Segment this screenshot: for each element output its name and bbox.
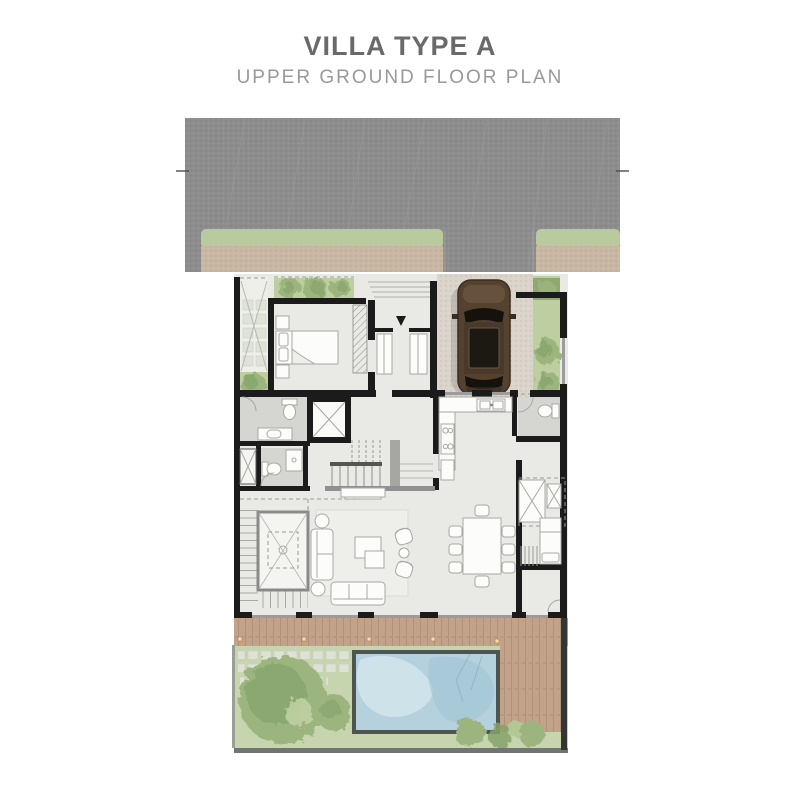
side-table-round bbox=[399, 548, 409, 558]
page: VILLA TYPE A UPPER GROUND FLOOR PLAN bbox=[0, 0, 800, 800]
bedroom-planter bbox=[274, 277, 354, 301]
sofa-3-seat bbox=[331, 582, 385, 605]
car bbox=[451, 280, 516, 394]
backyard-big-tree bbox=[239, 656, 327, 744]
pillow bbox=[279, 333, 288, 346]
dining-table bbox=[463, 518, 501, 574]
wardrobe bbox=[353, 305, 367, 373]
toilet bbox=[282, 399, 297, 420]
bathroom-2 bbox=[261, 448, 303, 486]
car-hood bbox=[463, 285, 505, 303]
console-table bbox=[341, 488, 385, 497]
yard-bottom-edge bbox=[234, 748, 568, 753]
car-sunroof bbox=[469, 328, 499, 368]
sidewalk-right bbox=[536, 229, 620, 272]
plan-subtitle: UPPER GROUND FLOOR PLAN bbox=[0, 67, 800, 89]
yard-right-edge bbox=[561, 618, 567, 750]
plan-title: VILLA TYPE A bbox=[0, 31, 800, 62]
toilet bbox=[262, 462, 281, 476]
double-height-void bbox=[258, 512, 308, 590]
lower-stair-flight bbox=[240, 510, 258, 606]
yard-left-edge bbox=[232, 645, 235, 748]
sidewalk-left bbox=[201, 229, 443, 272]
side-table-round bbox=[311, 582, 325, 596]
sink bbox=[267, 430, 281, 438]
car-mirror-right bbox=[509, 314, 516, 319]
plan-header: VILLA TYPE A UPPER GROUND FLOOR PLAN bbox=[0, 0, 800, 89]
ensuite-bathroom bbox=[240, 397, 307, 441]
backyard-bush bbox=[315, 694, 351, 730]
car-mirror-left bbox=[452, 314, 459, 319]
toilet bbox=[538, 404, 559, 418]
nightstand bbox=[276, 316, 289, 329]
powder-room bbox=[518, 397, 560, 436]
floor-plan-svg bbox=[0, 0, 800, 800]
lower-stair-turn bbox=[258, 590, 308, 608]
service-shaft bbox=[240, 449, 256, 484]
side-table-round bbox=[315, 514, 329, 528]
elevator bbox=[307, 396, 351, 443]
pillow bbox=[279, 348, 288, 361]
loveseat bbox=[311, 529, 333, 580]
backyard bbox=[232, 618, 568, 753]
stair-landing bbox=[390, 440, 400, 487]
nightstand bbox=[276, 365, 289, 378]
shower bbox=[286, 450, 302, 471]
building bbox=[234, 274, 568, 620]
console-cabinet bbox=[441, 460, 454, 480]
side-yard bbox=[240, 277, 268, 398]
maid-pillow bbox=[542, 553, 559, 562]
